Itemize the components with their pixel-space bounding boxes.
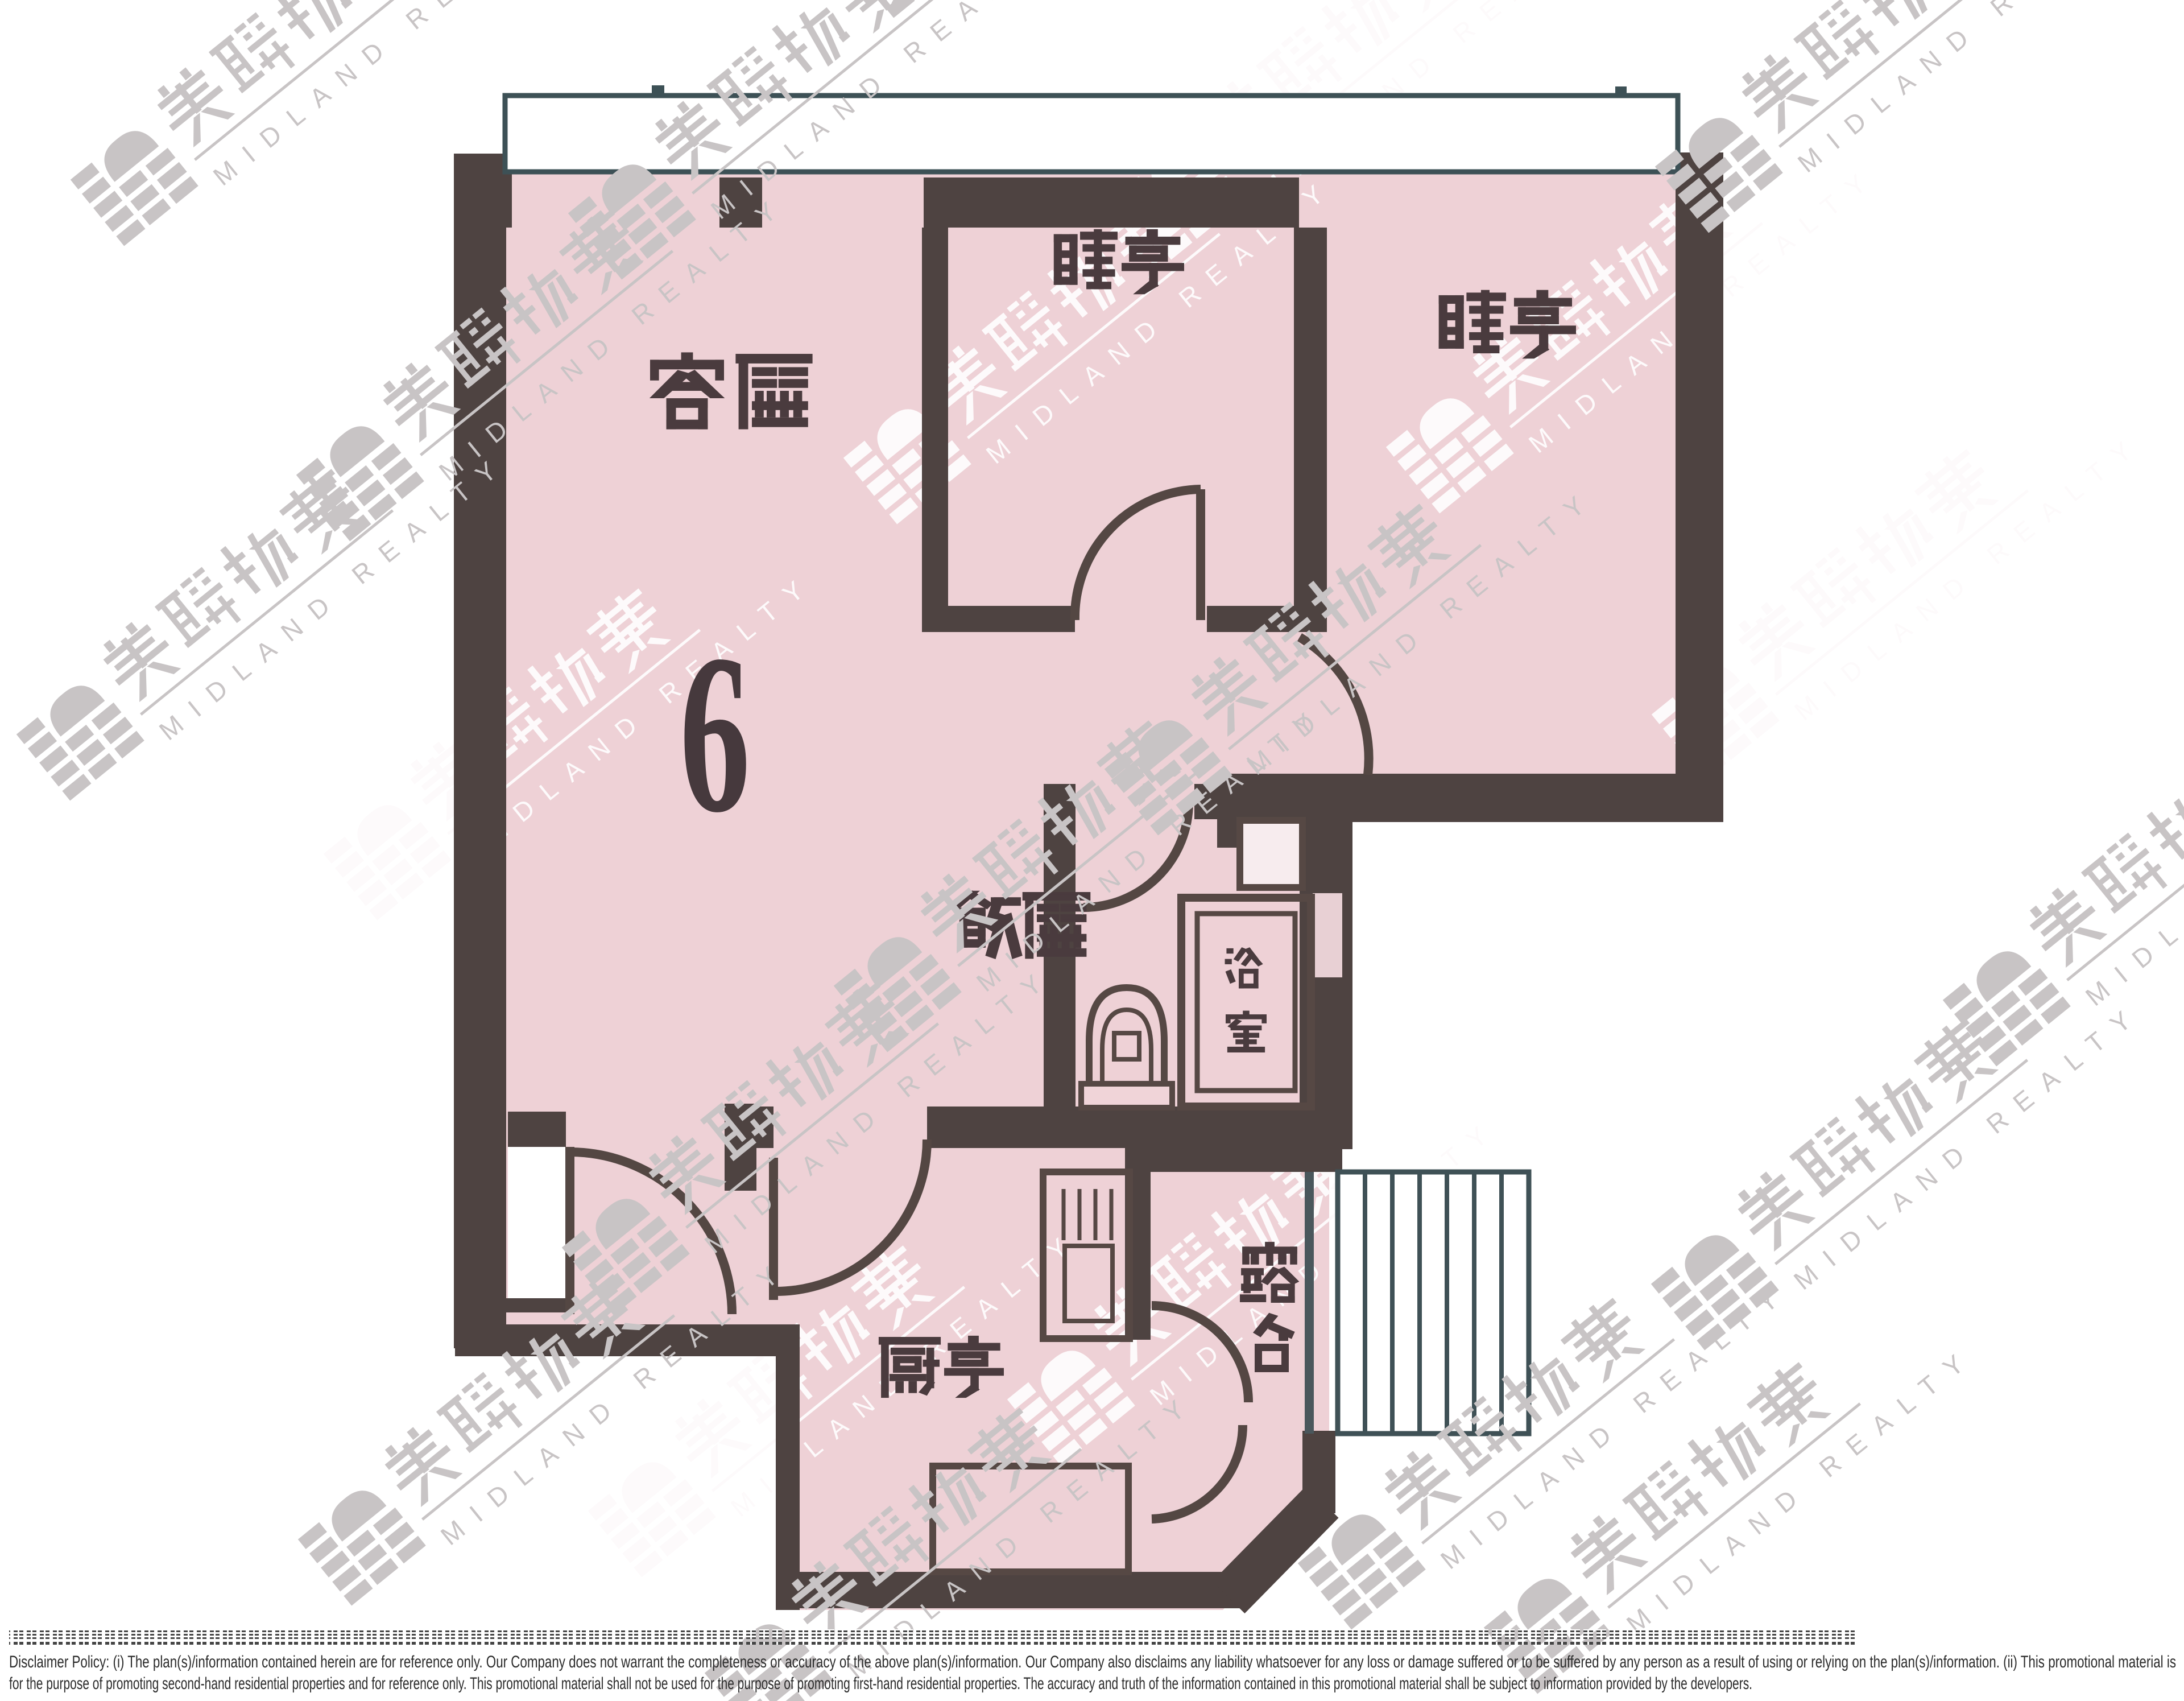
svg-text:6: 6 (680, 607, 750, 860)
svg-text:for the purpose of promoting s: for the purpose of promoting second-hand… (9, 1674, 1752, 1693)
svg-text:Disclaimer Policy: (i) The pla: Disclaimer Policy: (i) The plan(s)/infor… (9, 1653, 2176, 1671)
